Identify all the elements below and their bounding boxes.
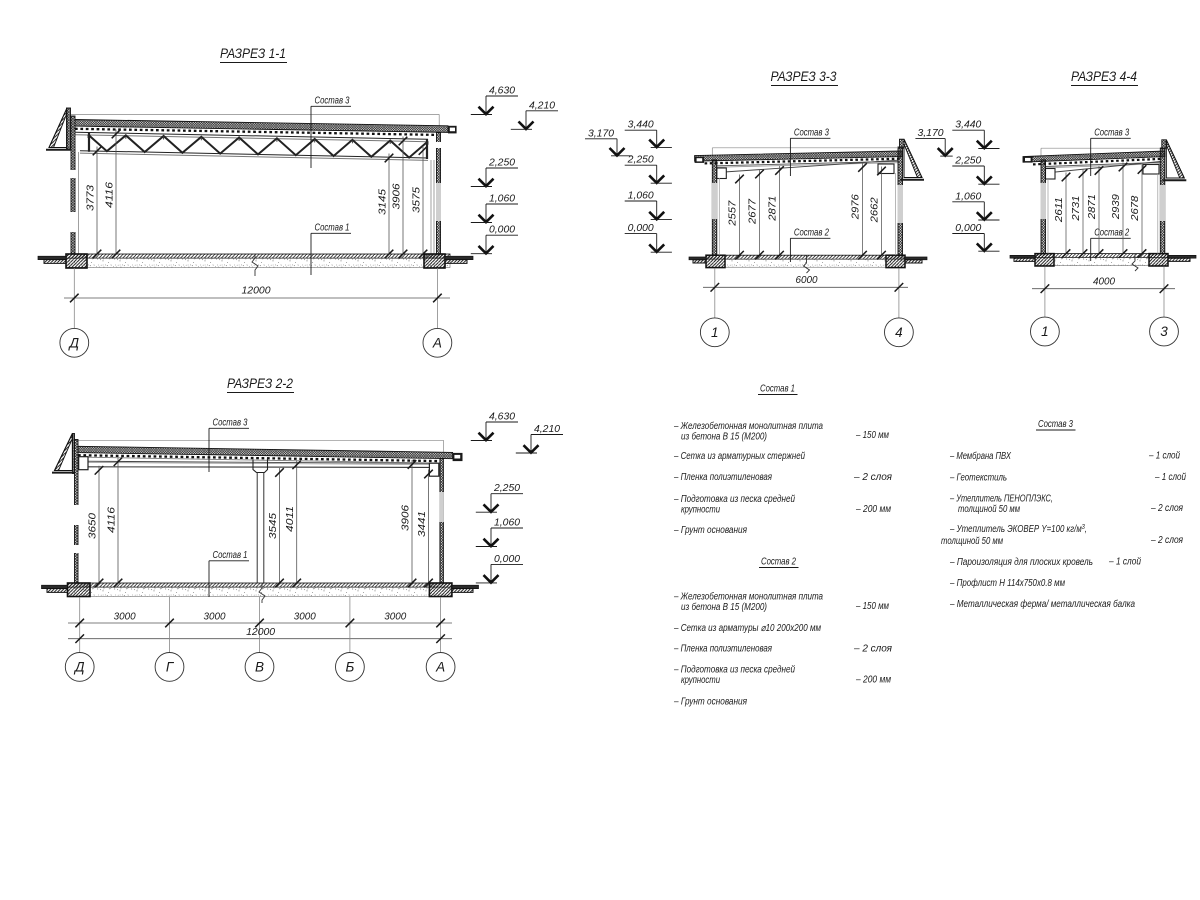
- svg-text:– Геотекстиль: – Геотекстиль: [949, 473, 1007, 484]
- svg-text:0,000: 0,000: [494, 554, 520, 565]
- svg-text:– Металлическая ферма/ металли: – Металлическая ферма/ металлическая бал…: [949, 598, 1135, 610]
- svg-text:– 2 слоя: – 2 слоя: [853, 644, 893, 655]
- svg-text:2677: 2677: [747, 198, 759, 225]
- svg-text:4,630: 4,630: [489, 412, 515, 423]
- svg-text:3575: 3575: [411, 187, 423, 213]
- svg-text:2,250: 2,250: [493, 483, 520, 494]
- svg-text:РАЗРЕЗ 1-1: РАЗРЕЗ 1-1: [220, 46, 286, 61]
- svg-text:– Утеплитель ПЕНОПЛЭКС,: – Утеплитель ПЕНОПЛЭКС,: [949, 494, 1053, 505]
- svg-text:3000: 3000: [114, 611, 136, 623]
- svg-text:3000: 3000: [294, 611, 316, 623]
- svg-text:4: 4: [895, 325, 903, 340]
- svg-text:– 150 мм: – 150 мм: [855, 601, 889, 612]
- svg-text:РАЗРЕЗ 4-4: РАЗРЕЗ 4-4: [1071, 69, 1137, 84]
- svg-text:3906: 3906: [391, 183, 403, 209]
- svg-text:Состав 3: Состав 3: [1094, 128, 1129, 139]
- svg-text:– Подготовка из песка средней: – Подготовка из песка средней: [673, 494, 795, 505]
- svg-text:– Сетка из арматуры ⌀10 200х20: – Сетка из арматуры ⌀10 200х200 мм: [673, 623, 821, 634]
- svg-text:Состав 2: Состав 2: [794, 228, 829, 239]
- svg-text:12000: 12000: [242, 285, 271, 297]
- svg-text:– Профлист Н 114х750х0.8 мм: – Профлист Н 114х750х0.8 мм: [949, 577, 1065, 589]
- svg-text:– Мембрана ПВХ: – Мембрана ПВХ: [949, 450, 1011, 462]
- svg-text:2,250: 2,250: [954, 156, 981, 167]
- svg-text:6000: 6000: [796, 274, 818, 286]
- svg-text:– Пароизоляция для плоских кро: – Пароизоляция для плоских кровель: [949, 557, 1093, 568]
- svg-text:4000: 4000: [1093, 276, 1115, 288]
- svg-text:2976: 2976: [850, 194, 862, 220]
- svg-text:Состав 2: Состав 2: [1094, 228, 1129, 239]
- svg-text:2611: 2611: [1053, 197, 1065, 223]
- svg-text:4,210: 4,210: [529, 100, 555, 111]
- svg-text:Состав 1: Состав 1: [213, 550, 248, 561]
- svg-text:– Утеплитель ЭКОВЕР Y=100 кг/м: – Утеплитель ЭКОВЕР Y=100 кг/м3,: [949, 524, 1087, 535]
- svg-text:А: А: [432, 335, 442, 350]
- svg-text:2871: 2871: [767, 196, 779, 222]
- svg-text:3,440: 3,440: [955, 120, 981, 131]
- svg-text:Б: Б: [346, 660, 355, 675]
- svg-text:из бетона В 15 (М200): из бетона В 15 (М200): [681, 431, 767, 443]
- svg-text:РАЗРЕЗ 2-2: РАЗРЕЗ 2-2: [227, 376, 293, 391]
- svg-text:– Пленка полиэтиленовая: – Пленка полиэтиленовая: [673, 472, 772, 483]
- svg-text:12000: 12000: [246, 626, 275, 638]
- svg-text:– Подготовка из песка средней: – Подготовка из песка средней: [673, 665, 795, 676]
- svg-text:3650: 3650: [87, 513, 99, 539]
- svg-text:3000: 3000: [204, 611, 226, 623]
- svg-text:В: В: [255, 660, 264, 675]
- svg-text:0,000: 0,000: [489, 225, 515, 236]
- svg-text:4,630: 4,630: [489, 86, 515, 97]
- svg-text:– 200 мм: – 200 мм: [855, 504, 891, 515]
- svg-text:Состав 3: Состав 3: [1038, 418, 1073, 430]
- svg-text:– 1 слой: – 1 слой: [1154, 472, 1186, 483]
- svg-text:3545: 3545: [267, 513, 279, 539]
- svg-text:– 1 слой: – 1 слой: [1108, 557, 1141, 568]
- svg-text:из бетона В 15 (М200): из бетона В 15 (М200): [681, 601, 767, 613]
- svg-text:1: 1: [711, 325, 719, 340]
- svg-text:1: 1: [1041, 324, 1049, 339]
- svg-text:– 200 мм: – 200 мм: [855, 675, 891, 686]
- svg-text:толщиной 50 мм: толщиной 50 мм: [958, 504, 1020, 515]
- svg-text:Состав 3: Состав 3: [794, 128, 829, 139]
- svg-text:3000: 3000: [384, 611, 406, 623]
- svg-text:– Сетка из арматурных стержней: – Сетка из арматурных стержней: [673, 451, 805, 462]
- svg-text:Состав 1: Состав 1: [315, 223, 350, 234]
- svg-text:3906: 3906: [400, 505, 412, 531]
- svg-text:– 150 мм: – 150 мм: [855, 430, 889, 441]
- svg-text:Д: Д: [68, 335, 80, 350]
- svg-text:– Грунт основания: – Грунт основания: [673, 697, 747, 708]
- svg-text:Г: Г: [166, 660, 175, 675]
- svg-text:– Железобетонная монолитная п: – Железобетонная монолитная плита: [673, 420, 823, 432]
- svg-text:3145: 3145: [377, 189, 389, 215]
- svg-text:– 1 слой: – 1 слой: [1148, 451, 1180, 462]
- svg-text:– Пленка полиэтиленовая: – Пленка полиэтиленовая: [673, 644, 772, 655]
- svg-text:2,250: 2,250: [627, 155, 654, 166]
- svg-text:3,170: 3,170: [588, 128, 614, 139]
- svg-text:– 2 слоя: – 2 слоя: [1150, 535, 1183, 546]
- svg-text:3441: 3441: [416, 511, 428, 537]
- svg-text:3,170: 3,170: [918, 128, 944, 139]
- svg-text:2731: 2731: [1070, 196, 1082, 222]
- svg-text:2,250: 2,250: [488, 158, 515, 169]
- svg-text:1,060: 1,060: [628, 191, 654, 202]
- svg-text:0,000: 0,000: [955, 223, 981, 234]
- svg-text:Состав 3: Состав 3: [315, 96, 350, 107]
- svg-text:– 2 слоя: – 2 слоя: [853, 472, 893, 483]
- svg-text:Д: Д: [73, 660, 85, 675]
- svg-text:2557: 2557: [727, 199, 739, 226]
- svg-text:2939: 2939: [1110, 194, 1122, 220]
- svg-text:2662: 2662: [869, 197, 881, 223]
- svg-text:1,060: 1,060: [494, 518, 520, 529]
- svg-text:3: 3: [1160, 324, 1168, 339]
- svg-text:крупности: крупности: [681, 505, 720, 516]
- svg-text:2871: 2871: [1086, 194, 1098, 220]
- svg-text:РАЗРЕЗ 3-3: РАЗРЕЗ 3-3: [771, 69, 837, 84]
- svg-text:0,000: 0,000: [628, 223, 654, 234]
- svg-text:4,210: 4,210: [534, 424, 560, 435]
- svg-text:4116: 4116: [104, 182, 116, 208]
- svg-text:– 2 слоя: – 2 слоя: [1150, 503, 1183, 514]
- svg-text:Состав 2: Состав 2: [761, 556, 796, 568]
- svg-text:крупности: крупности: [681, 675, 720, 686]
- svg-text:3773: 3773: [85, 185, 97, 211]
- svg-text:Состав 3: Состав 3: [213, 418, 248, 429]
- svg-text:2678: 2678: [1129, 196, 1141, 222]
- svg-text:3,440: 3,440: [628, 120, 654, 131]
- svg-text:4011: 4011: [284, 506, 296, 532]
- svg-text:1,060: 1,060: [489, 194, 515, 205]
- svg-text:Состав 1: Состав 1: [760, 383, 795, 395]
- svg-text:– Грунт основания: – Грунт основания: [673, 525, 747, 536]
- svg-text:А: А: [435, 660, 445, 675]
- svg-text:1,060: 1,060: [955, 191, 981, 202]
- svg-text:– Железобетонная монолитная п: – Железобетонная монолитная плита: [673, 591, 823, 603]
- svg-text:толщиной 50 мм: толщиной 50 мм: [941, 536, 1003, 547]
- svg-text:4116: 4116: [106, 507, 118, 533]
